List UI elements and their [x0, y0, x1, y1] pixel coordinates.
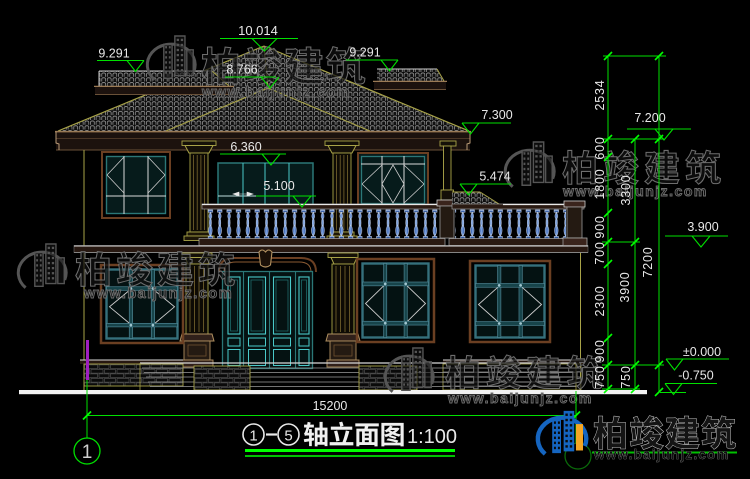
svg-text:www.baijunjz.com: www.baijunjz.com — [447, 390, 593, 406]
svg-text:1: 1 — [82, 442, 93, 463]
svg-text:9.291: 9.291 — [349, 46, 380, 60]
svg-text:-0.750: -0.750 — [678, 369, 713, 383]
svg-text:750: 750 — [619, 365, 633, 388]
svg-text:5: 5 — [284, 428, 292, 445]
svg-text:8.766: 8.766 — [226, 63, 257, 77]
svg-text:9.291: 9.291 — [98, 47, 129, 61]
svg-text:6.360: 6.360 — [230, 140, 261, 154]
svg-text:700: 700 — [593, 241, 607, 264]
svg-text:10.014: 10.014 — [238, 23, 278, 38]
svg-text:www.baijunjz.com: www.baijunjz.com — [83, 286, 233, 302]
svg-text:900: 900 — [593, 339, 607, 362]
svg-text:7200: 7200 — [641, 246, 655, 277]
svg-text:600: 600 — [593, 136, 607, 159]
svg-text:www.baijunjz.com: www.baijunjz.com — [593, 447, 730, 462]
svg-text:±0.000: ±0.000 — [683, 345, 721, 359]
svg-text:3.900: 3.900 — [687, 220, 718, 234]
svg-text:5.474: 5.474 — [479, 170, 510, 184]
svg-text:15200: 15200 — [313, 399, 348, 413]
svg-text:7.300: 7.300 — [481, 108, 512, 122]
svg-text:900: 900 — [593, 215, 607, 238]
svg-text:3300: 3300 — [619, 174, 633, 205]
svg-text:2300: 2300 — [593, 285, 607, 316]
svg-text:3900: 3900 — [618, 271, 632, 302]
svg-text:7.200: 7.200 — [634, 111, 665, 125]
svg-text:www.baijunjz.com: www.baijunjz.com — [201, 85, 351, 101]
svg-text:1: 1 — [249, 428, 257, 445]
svg-text:750: 750 — [593, 365, 607, 388]
svg-text:5.100: 5.100 — [263, 179, 294, 193]
svg-text:1800: 1800 — [593, 168, 607, 199]
svg-text:2534: 2534 — [593, 79, 607, 110]
svg-text:1:100: 1:100 — [407, 426, 457, 448]
